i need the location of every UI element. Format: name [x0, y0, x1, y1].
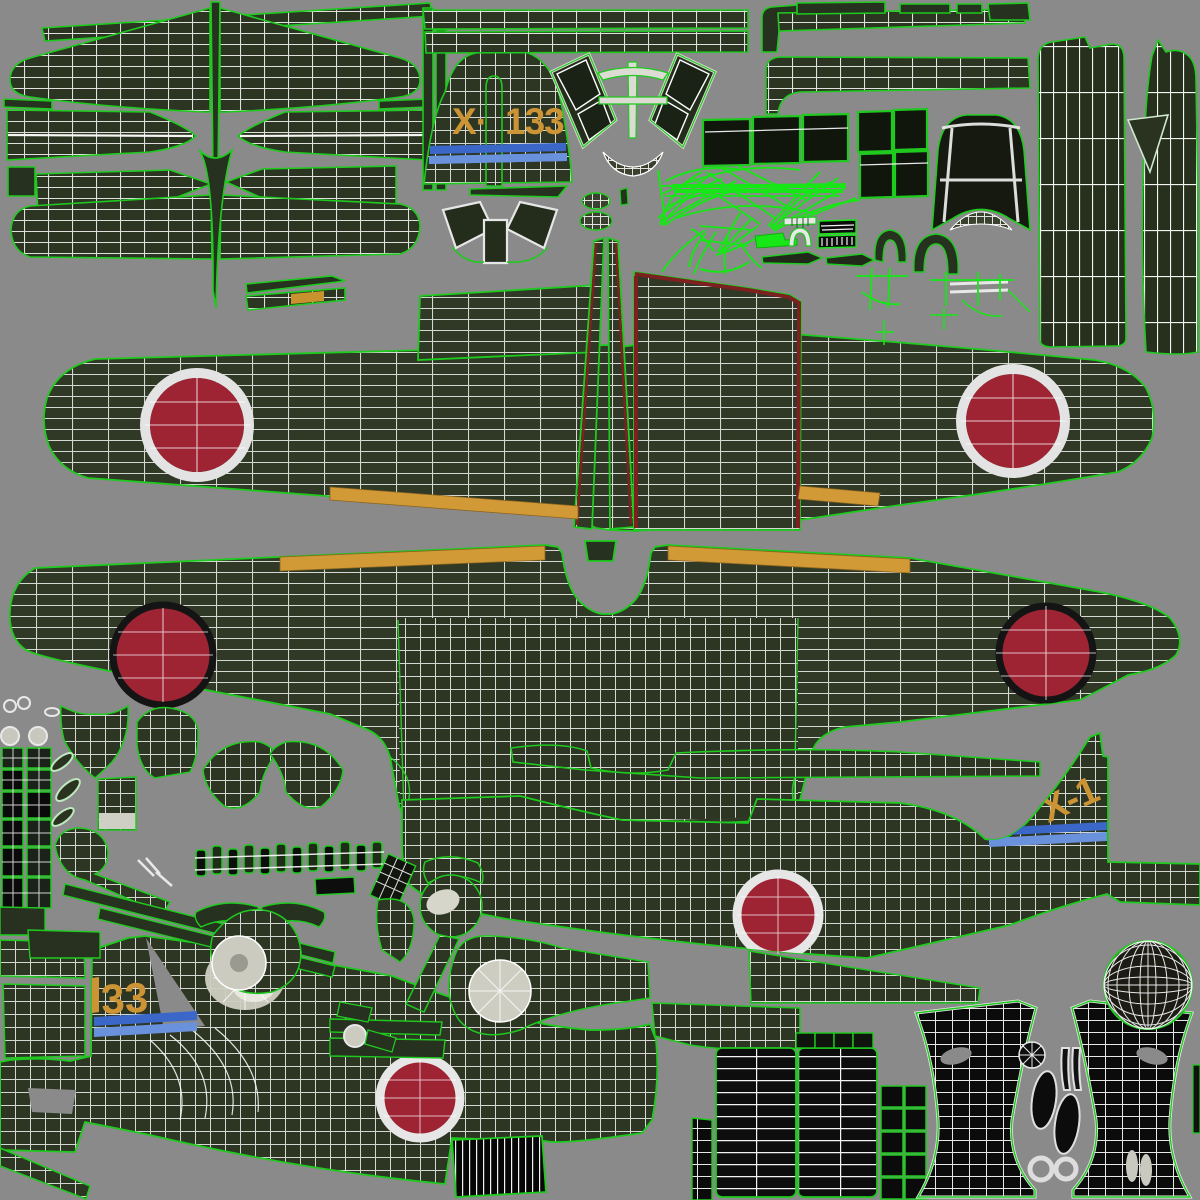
svg-text:133: 133 — [505, 101, 564, 142]
svg-text:X·: X· — [452, 101, 487, 142]
